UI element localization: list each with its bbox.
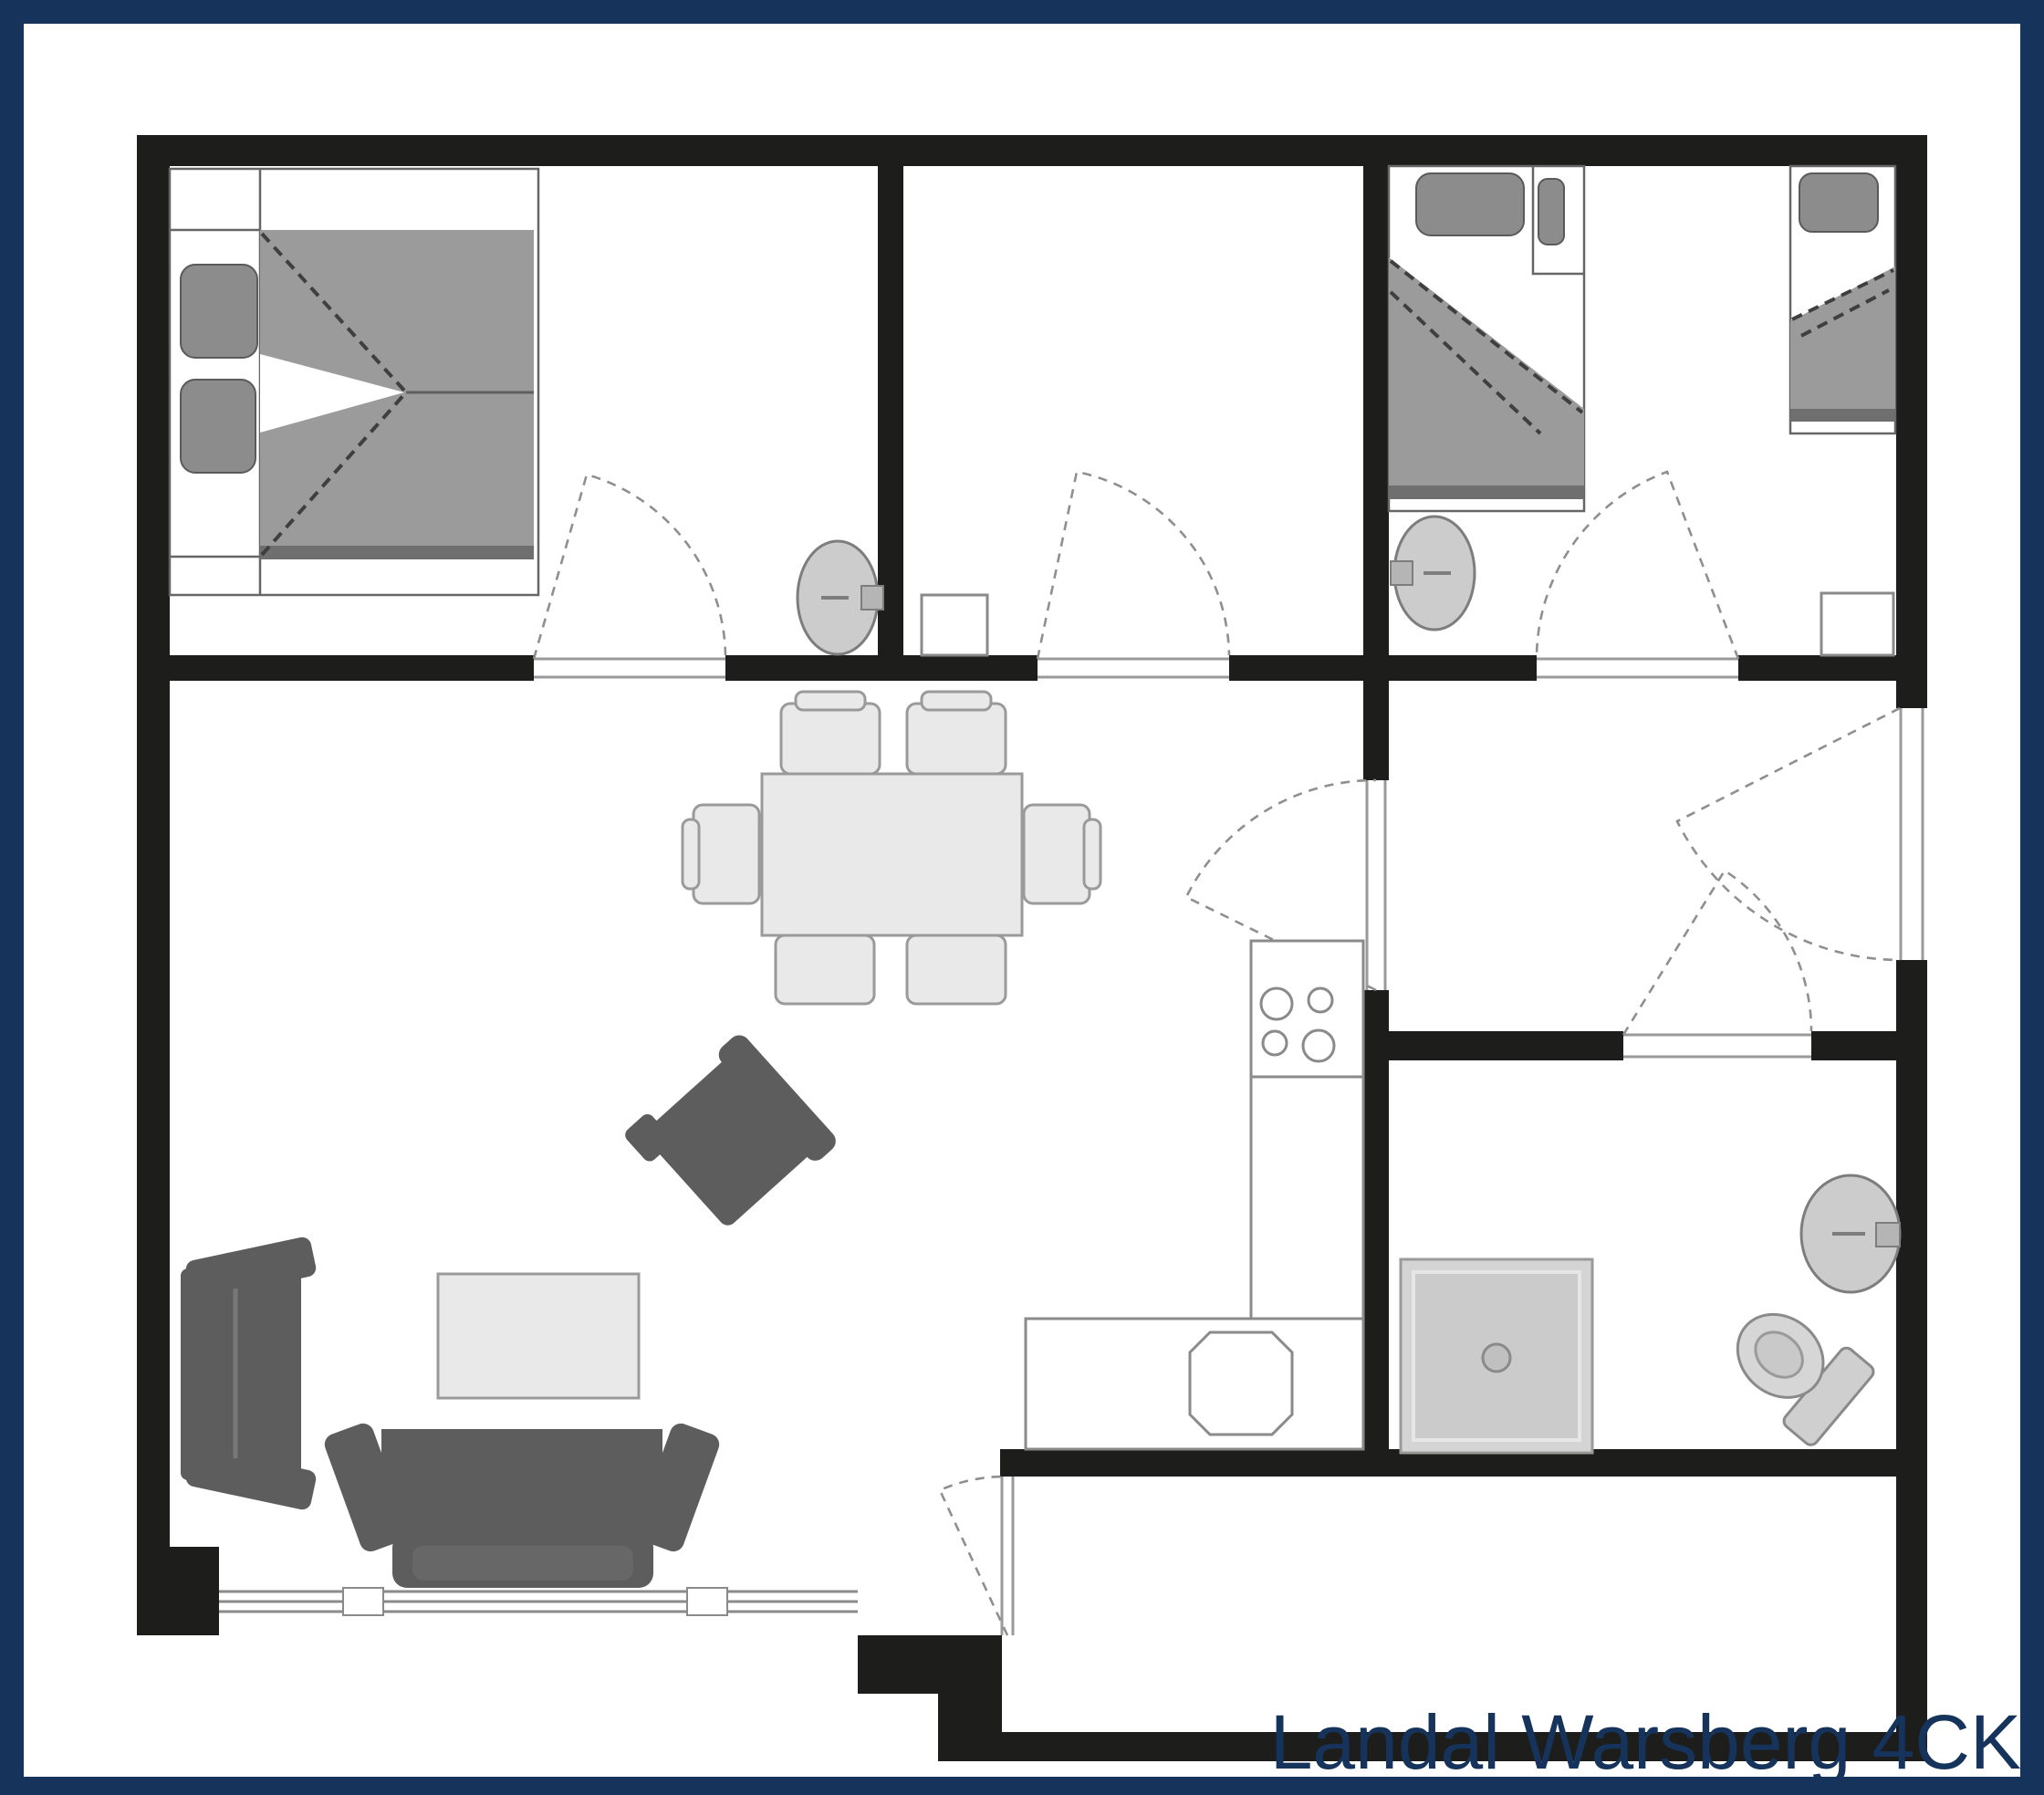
dining-table: [762, 774, 1022, 935]
pillow: [181, 380, 255, 473]
wall-top: [137, 135, 1927, 166]
window-mullion: [687, 1588, 727, 1615]
wash-basin: [1801, 1175, 1900, 1292]
wall-right-upper: [1896, 135, 1927, 708]
dining-chair: [1024, 805, 1090, 903]
dining-chair-back: [1084, 819, 1100, 889]
kitchen-sink: [1190, 1332, 1292, 1435]
wall-right-lower: [1896, 960, 1927, 1761]
wall-mid-c: [1229, 655, 1537, 681]
wall-step-b: [938, 1635, 1002, 1761]
window-mullion: [343, 1588, 383, 1615]
coffee-table: [438, 1274, 639, 1398]
window-front: [219, 1586, 858, 1617]
bedroom-middle: [922, 595, 987, 655]
pillow: [1538, 179, 1564, 245]
wall-sofa: [181, 1236, 318, 1511]
dining-chair-back: [796, 692, 865, 710]
wall-bedroom3-divider: [1363, 166, 1389, 655]
duvet-edge: [260, 546, 534, 559]
dining-chair-back: [922, 692, 991, 710]
dining-chair: [907, 935, 1006, 1004]
plan-title: Landal Warsberg 4CK: [1270, 1699, 2021, 1785]
side-table: [1821, 593, 1893, 655]
dining-chair: [693, 805, 759, 903]
dining-chair-back: [683, 819, 699, 889]
wall-step-a: [858, 1635, 938, 1694]
wall-left: [137, 135, 170, 1635]
pillow: [181, 265, 257, 358]
floorplan-drawing: Landal Warsberg 4CK: [0, 0, 2044, 1795]
floorplan-page: Landal Warsberg 4CK: [0, 0, 2044, 1795]
wall-corner-block: [137, 1547, 219, 1635]
wall-mid-b: [725, 655, 1038, 681]
pillow: [1799, 173, 1878, 232]
pillow: [1416, 173, 1524, 235]
dining-chair: [781, 704, 880, 774]
wall-hall-kitchen-lower: [1363, 990, 1389, 1477]
dining-chair: [776, 935, 874, 1004]
wall-bedroom1-divider: [878, 166, 903, 655]
wall-mid-a: [137, 655, 534, 681]
dining-chair: [907, 704, 1006, 774]
shower: [1401, 1259, 1592, 1453]
wall-mid-d: [1738, 655, 1927, 681]
wall-bathroom-top-b: [1811, 1031, 1896, 1060]
wall-hall-kitchen-upper: [1363, 681, 1389, 780]
wall-bathroom-top-a: [1389, 1031, 1623, 1060]
side-table: [922, 595, 987, 655]
